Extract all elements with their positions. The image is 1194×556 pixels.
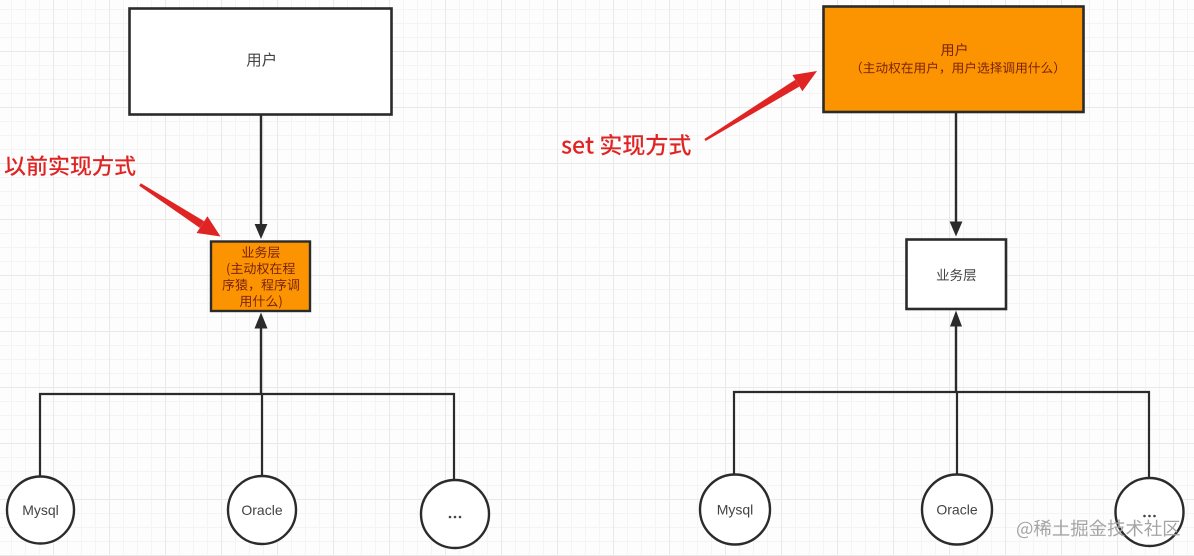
svg-text:Oracle: Oracle	[241, 502, 282, 518]
svg-text:Mysql: Mysql	[717, 502, 754, 518]
svg-text:Oracle: Oracle	[936, 502, 977, 518]
svg-text:Mysql: Mysql	[22, 502, 59, 518]
